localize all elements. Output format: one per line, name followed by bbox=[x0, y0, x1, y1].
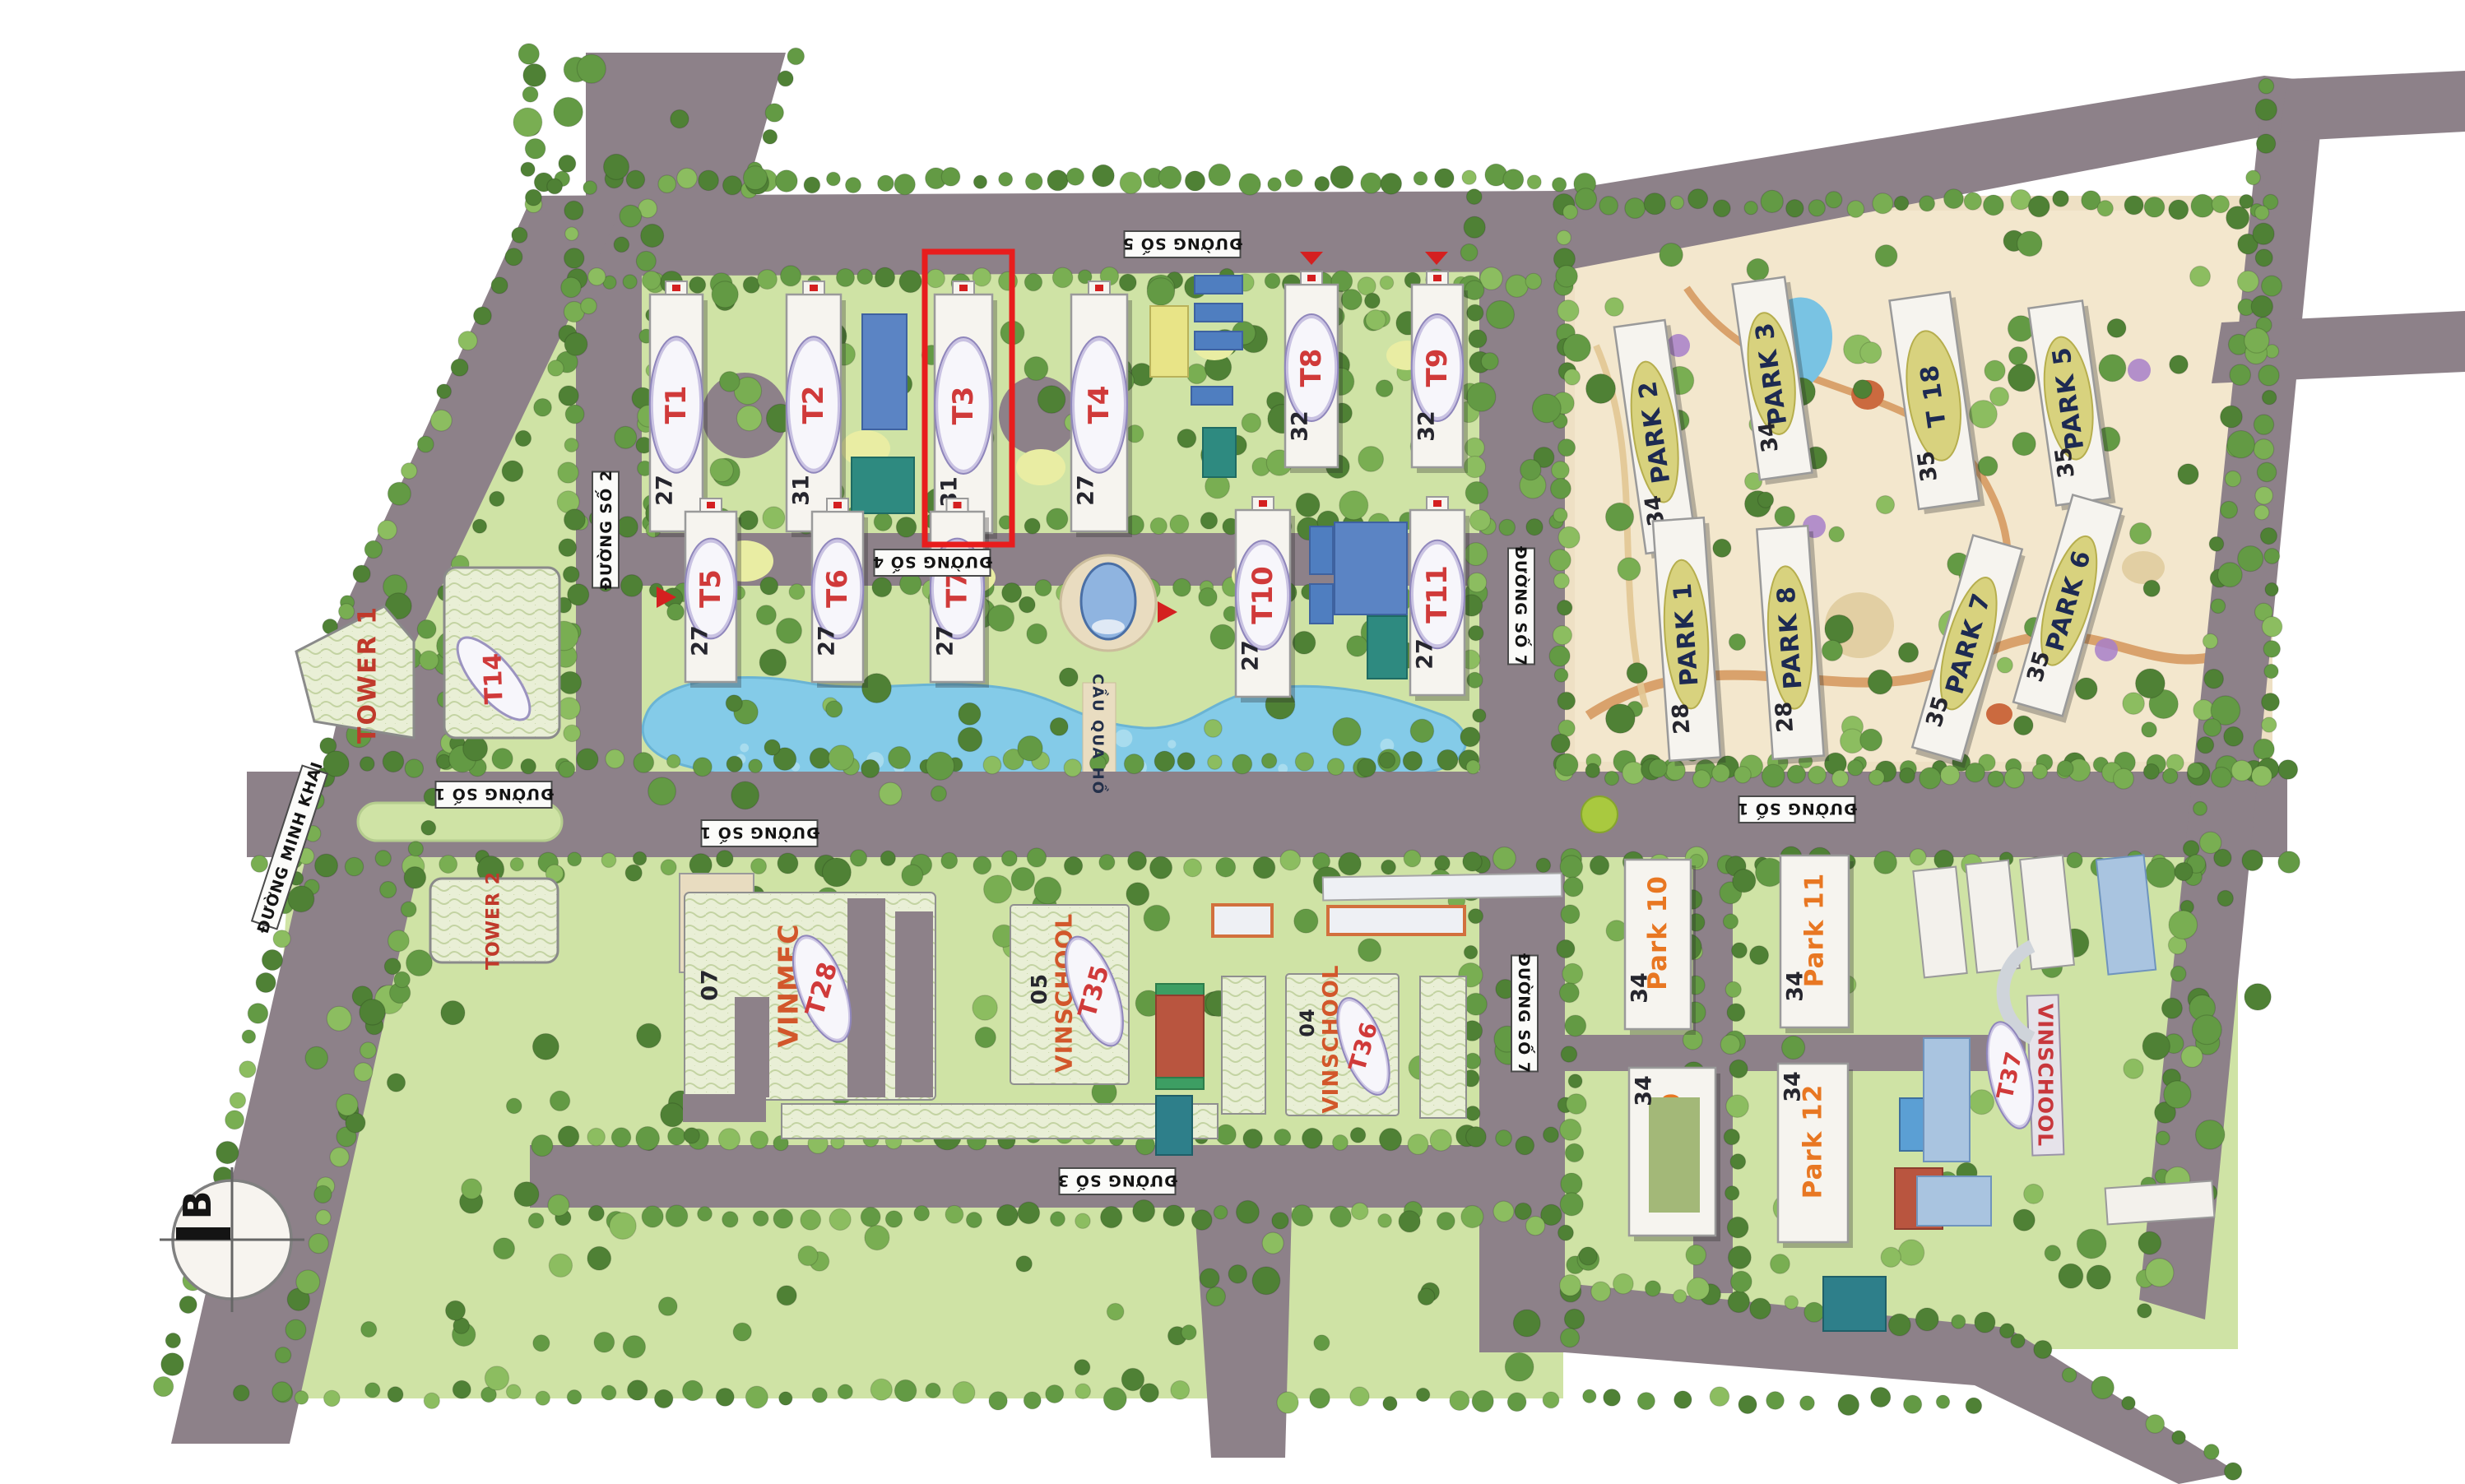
tree-icon bbox=[1692, 770, 1711, 788]
tree-icon bbox=[773, 1209, 792, 1228]
tree-icon bbox=[1687, 1278, 1709, 1300]
building-label-T9: T9 bbox=[1421, 349, 1454, 387]
tree-icon bbox=[875, 267, 895, 287]
tree-icon bbox=[513, 108, 542, 137]
tree-icon bbox=[179, 1296, 197, 1313]
tree-icon bbox=[1888, 1314, 1910, 1336]
tree-icon bbox=[2034, 1340, 2052, 1358]
tree-icon bbox=[1216, 857, 1236, 877]
tree-icon bbox=[510, 858, 523, 871]
tree-icon bbox=[1744, 202, 1757, 215]
tree-icon bbox=[1399, 1211, 1420, 1232]
facility-structure bbox=[1150, 306, 1188, 377]
tree-icon bbox=[2190, 267, 2211, 287]
tree-icon bbox=[1333, 1135, 1349, 1151]
tree-icon bbox=[727, 756, 742, 772]
tree-icon bbox=[2253, 223, 2274, 244]
tree-icon bbox=[1825, 614, 1853, 642]
tree-icon bbox=[973, 995, 997, 1020]
tree-icon bbox=[926, 269, 945, 287]
tree-icon bbox=[2203, 633, 2217, 648]
tree-icon bbox=[1552, 461, 1570, 480]
tree-icon bbox=[1414, 172, 1427, 186]
tree-icon bbox=[339, 604, 355, 619]
tree-icon bbox=[1853, 380, 1872, 399]
tree-icon bbox=[547, 179, 563, 194]
tree-icon bbox=[1915, 1308, 1938, 1331]
tree-icon bbox=[1725, 981, 1741, 997]
tree-icon bbox=[1561, 1173, 1582, 1194]
facility-structure bbox=[1195, 304, 1242, 322]
facility-structure bbox=[2105, 1181, 2215, 1225]
tree-icon bbox=[870, 1379, 892, 1400]
tree-icon bbox=[636, 251, 656, 271]
tree-icon bbox=[383, 751, 403, 772]
tree-icon bbox=[1503, 169, 1524, 190]
building-number-PARK12: 34 bbox=[1780, 1071, 1806, 1102]
tree-icon bbox=[959, 703, 981, 725]
tree-icon bbox=[1565, 1015, 1586, 1036]
street-label-text: ĐƯỜNG SỐ 3 bbox=[1057, 1171, 1177, 1193]
tree-icon bbox=[1558, 439, 1576, 457]
tree-icon bbox=[1351, 1203, 1367, 1219]
tree-icon bbox=[2254, 415, 2273, 434]
tree-icon bbox=[1327, 758, 1344, 775]
tree-icon bbox=[272, 1382, 292, 1402]
tree-icon bbox=[759, 649, 786, 675]
tree-icon bbox=[1365, 293, 1381, 308]
tree-icon bbox=[404, 867, 425, 888]
tree-icon bbox=[1376, 380, 1393, 397]
tree-icon bbox=[2230, 364, 2250, 385]
tree-icon bbox=[1822, 640, 1842, 661]
tree-icon bbox=[2258, 78, 2273, 93]
lake-ripple bbox=[1168, 740, 1176, 748]
tree-icon bbox=[161, 1353, 183, 1375]
facility-structure bbox=[1156, 1096, 1192, 1155]
tree-icon bbox=[689, 276, 706, 293]
tree-icon bbox=[885, 1211, 902, 1227]
tree-icon bbox=[1177, 429, 1196, 448]
tree-icon bbox=[491, 277, 508, 294]
facility-structure bbox=[1335, 522, 1407, 614]
tree-icon bbox=[1150, 517, 1167, 534]
tree-icon bbox=[2254, 739, 2274, 759]
tree-icon bbox=[1556, 266, 1577, 287]
tree-icon bbox=[1378, 1214, 1392, 1228]
tree-icon bbox=[446, 1301, 466, 1320]
tree-icon bbox=[1075, 1384, 1090, 1398]
tree-icon bbox=[1549, 550, 1571, 571]
facility-structure bbox=[1191, 387, 1232, 405]
tree-icon bbox=[2097, 201, 2113, 216]
tree-icon bbox=[751, 859, 767, 874]
tree-icon bbox=[1011, 867, 1034, 890]
tree-icon bbox=[750, 1131, 768, 1149]
tree-icon bbox=[490, 491, 504, 506]
tree-icon bbox=[1469, 330, 1487, 348]
tree-icon bbox=[684, 1128, 699, 1143]
tree-icon bbox=[1713, 539, 1731, 557]
tree-icon bbox=[1210, 624, 1235, 649]
tree-icon bbox=[2231, 760, 2252, 781]
tree-icon bbox=[1280, 850, 1301, 870]
tree-icon bbox=[532, 1033, 559, 1060]
tree-icon bbox=[1507, 1393, 1526, 1412]
tree-icon bbox=[623, 1336, 645, 1358]
building-T9: T932 bbox=[1412, 271, 1468, 473]
tree-icon bbox=[1565, 1143, 1583, 1162]
tree-icon bbox=[2260, 528, 2277, 545]
tree-icon bbox=[515, 430, 531, 446]
tree-icon bbox=[1554, 669, 1567, 682]
road bbox=[1479, 856, 1565, 1352]
tree-icon bbox=[549, 1254, 572, 1277]
tree-icon bbox=[1966, 763, 1985, 781]
tree-icon bbox=[1553, 178, 1567, 192]
tree-icon bbox=[625, 865, 642, 881]
tree-icon bbox=[2193, 802, 2207, 816]
tree-icon bbox=[1285, 169, 1302, 187]
tree-icon bbox=[1093, 165, 1115, 187]
tree-icon bbox=[804, 177, 820, 193]
tree-icon bbox=[1876, 495, 1894, 513]
tree-icon bbox=[1826, 192, 1842, 208]
tree-icon bbox=[1536, 858, 1550, 872]
tree-icon bbox=[1899, 642, 1919, 662]
tree-icon bbox=[1019, 596, 1036, 613]
tree-icon bbox=[1532, 394, 1561, 423]
tree-icon bbox=[559, 386, 578, 406]
tree-icon bbox=[327, 1006, 351, 1031]
facility-structure bbox=[1367, 616, 1407, 679]
tree-icon bbox=[1315, 177, 1330, 192]
tree-icon bbox=[1121, 1368, 1144, 1390]
tree-icon bbox=[430, 410, 452, 431]
tree-icon bbox=[2221, 406, 2243, 428]
roof-marker-icon bbox=[1259, 500, 1267, 507]
tree-icon bbox=[801, 1210, 821, 1231]
tree-icon bbox=[559, 698, 581, 720]
tree-icon bbox=[2196, 1120, 2225, 1149]
tree-icon bbox=[1496, 1130, 1512, 1147]
tree-icon bbox=[2028, 196, 2050, 217]
tree-icon bbox=[2181, 1046, 2203, 1067]
tree-icon bbox=[1847, 201, 1864, 218]
tree-icon bbox=[1473, 709, 1486, 722]
roof-marker-icon bbox=[1433, 275, 1441, 281]
tree-icon bbox=[975, 1027, 996, 1048]
tree-icon bbox=[861, 759, 880, 777]
tree-icon bbox=[1268, 178, 1281, 191]
tree-icon bbox=[1829, 526, 1845, 542]
tree-icon bbox=[2075, 678, 2097, 700]
tree-icon bbox=[787, 48, 804, 64]
tree-icon bbox=[777, 1286, 796, 1305]
tree-icon bbox=[1216, 1125, 1236, 1144]
tree-icon bbox=[2244, 984, 2271, 1010]
tree-icon bbox=[1380, 1129, 1402, 1151]
tree-icon bbox=[2107, 318, 2126, 337]
tree-icon bbox=[1002, 583, 1022, 603]
tree-icon bbox=[2169, 200, 2189, 220]
tree-icon bbox=[588, 268, 606, 285]
tree-icon bbox=[594, 1332, 615, 1352]
tree-icon bbox=[2011, 189, 2031, 209]
tree-icon bbox=[1361, 173, 1381, 193]
tree-icon bbox=[1242, 413, 1260, 432]
tree-icon bbox=[666, 1205, 687, 1227]
tree-icon bbox=[1016, 1256, 1032, 1272]
building-number-T8: 32 bbox=[1288, 410, 1313, 442]
tree-icon bbox=[827, 172, 841, 186]
tree-icon bbox=[353, 565, 370, 582]
tree-icon bbox=[275, 1347, 290, 1363]
tree-icon bbox=[558, 1126, 578, 1147]
building-label-T5: T5 bbox=[694, 569, 727, 608]
tree-icon bbox=[1970, 401, 1998, 429]
tree-icon bbox=[567, 1390, 581, 1404]
tree-icon bbox=[2014, 716, 2033, 735]
tree-icon bbox=[1506, 275, 1528, 297]
tree-icon bbox=[1075, 1360, 1090, 1375]
tree-icon bbox=[1252, 1267, 1280, 1295]
tree-icon bbox=[1560, 856, 1582, 878]
tree-icon bbox=[1467, 304, 1483, 321]
tree-icon bbox=[698, 1207, 713, 1222]
tree-icon bbox=[1637, 1393, 1655, 1410]
tree-icon bbox=[288, 886, 314, 912]
tree-icon bbox=[1185, 171, 1205, 191]
tree-icon bbox=[880, 851, 895, 865]
tree-icon bbox=[1154, 751, 1175, 772]
tree-icon bbox=[1591, 1282, 1611, 1301]
tree-icon bbox=[1358, 758, 1376, 777]
tree-icon bbox=[2146, 1259, 2174, 1287]
tree-icon bbox=[2142, 1032, 2170, 1060]
tree-icon bbox=[295, 1391, 308, 1404]
tree-icon bbox=[521, 162, 535, 176]
tree-icon bbox=[242, 1030, 255, 1043]
building-number-T4: 27 bbox=[1074, 475, 1099, 506]
tree-icon bbox=[1380, 276, 1393, 290]
tree-icon bbox=[1766, 1392, 1785, 1410]
tree-icon bbox=[671, 110, 689, 128]
tree-icon bbox=[2191, 194, 2214, 217]
tree-icon bbox=[417, 620, 436, 639]
tree-icon bbox=[1239, 174, 1260, 195]
tree-icon bbox=[2067, 852, 2082, 868]
tree-icon bbox=[384, 958, 401, 975]
tree-icon bbox=[1644, 193, 1665, 215]
tree-icon bbox=[1027, 848, 1046, 867]
tree-icon bbox=[723, 176, 742, 195]
tree-icon bbox=[779, 1392, 792, 1405]
facility-structure bbox=[683, 1094, 766, 1122]
tree-icon bbox=[1725, 1186, 1739, 1200]
tree-icon bbox=[2062, 1368, 2076, 1382]
tree-icon bbox=[718, 1129, 740, 1150]
tree-icon bbox=[2161, 998, 2182, 1018]
tree-icon bbox=[2237, 271, 2258, 292]
tree-icon bbox=[677, 168, 698, 188]
tree-icon bbox=[1564, 369, 1580, 385]
tree-icon bbox=[1410, 719, 1433, 742]
tree-icon bbox=[1557, 300, 1579, 322]
roof-marker-icon bbox=[833, 502, 842, 508]
tree-icon bbox=[2099, 355, 2126, 382]
tree-icon bbox=[1107, 1303, 1123, 1319]
road bbox=[2279, 71, 2465, 141]
tree-icon bbox=[273, 930, 290, 948]
tree-icon bbox=[1564, 1309, 1584, 1329]
building-T1: T127 bbox=[650, 281, 708, 537]
tree-icon bbox=[463, 736, 488, 761]
tree-icon bbox=[736, 406, 762, 431]
tree-icon bbox=[973, 175, 986, 188]
tree-icon bbox=[637, 1023, 662, 1048]
building-T7: T727 bbox=[931, 499, 989, 688]
tree-icon bbox=[2170, 355, 2188, 373]
tree-icon bbox=[2240, 194, 2254, 208]
tree-icon bbox=[365, 1383, 380, 1398]
building-number-PARK3: 34 bbox=[1754, 420, 1784, 455]
tree-icon bbox=[1191, 1210, 1212, 1231]
tree-icon bbox=[1941, 766, 1960, 785]
tree-icon bbox=[472, 519, 486, 533]
tree-icon bbox=[2175, 863, 2193, 881]
tree-icon bbox=[1710, 1387, 1729, 1407]
tree-icon bbox=[2262, 717, 2277, 732]
tree-icon bbox=[1466, 1127, 1486, 1147]
tree-icon bbox=[1314, 1335, 1330, 1351]
tree-icon bbox=[781, 266, 801, 286]
tree-icon bbox=[822, 858, 851, 887]
building-PARK12: Park 1234 bbox=[1778, 1064, 1853, 1248]
tree-icon bbox=[1350, 1387, 1369, 1406]
tree-icon bbox=[2209, 536, 2224, 551]
tree-icon bbox=[1723, 914, 1738, 929]
tree-icon bbox=[521, 758, 536, 773]
tree-icon bbox=[337, 1094, 358, 1115]
tree-icon bbox=[1731, 1271, 1752, 1292]
tree-icon bbox=[587, 1128, 605, 1145]
tree-icon bbox=[565, 405, 584, 424]
tree-icon bbox=[1124, 754, 1144, 774]
tree-icon bbox=[1513, 1310, 1540, 1337]
tree-icon bbox=[494, 1238, 515, 1259]
tree-icon bbox=[1560, 1119, 1581, 1140]
tree-icon bbox=[2172, 1431, 2185, 1444]
tree-icon bbox=[1585, 763, 1599, 777]
tree-icon bbox=[1024, 518, 1040, 534]
tree-icon bbox=[1417, 1388, 1430, 1401]
tree-icon bbox=[408, 842, 423, 856]
street-label-text: ĐƯỜNG SỐ 5 bbox=[1122, 234, 1242, 256]
tree-icon bbox=[1786, 200, 1803, 217]
park-flowerbed bbox=[2128, 359, 2151, 382]
tree-icon bbox=[941, 852, 958, 869]
street-label-text: ĐƯỜNG SỐ 4 bbox=[872, 553, 992, 574]
tree-icon bbox=[2008, 364, 2035, 392]
site-plan-svg: T127T231T331T427T832T932T527T627T727T102… bbox=[0, 0, 2465, 1484]
building-label-T10: T10 bbox=[1246, 566, 1279, 624]
building-label-T1: T1 bbox=[660, 386, 693, 424]
tree-icon bbox=[1583, 1389, 1596, 1403]
tree-icon bbox=[324, 1390, 341, 1407]
tree-icon bbox=[2188, 763, 2203, 778]
tree-icon bbox=[1804, 1302, 1824, 1322]
tree-icon bbox=[628, 1380, 648, 1400]
facility-label-vinschool-t37: VINSCHOOL bbox=[2034, 1004, 2058, 1147]
tree-icon bbox=[1873, 193, 1893, 214]
tree-icon bbox=[1590, 856, 1609, 874]
tree-icon bbox=[1493, 1201, 1514, 1222]
tree-icon bbox=[2024, 1184, 2044, 1203]
tree-icon bbox=[2013, 1209, 2035, 1231]
tree-icon bbox=[850, 850, 866, 866]
street-label-text: ĐƯỜNG SỐ 1 bbox=[434, 785, 554, 806]
tree-icon bbox=[1060, 668, 1079, 687]
tree-icon bbox=[1525, 273, 1541, 289]
street-label-6: ĐƯỜNG SỐ 1 bbox=[699, 820, 819, 846]
street-label-text: ĐƯỜNG SỐ 1 bbox=[699, 823, 819, 845]
tree-icon bbox=[2197, 737, 2213, 754]
tree-icon bbox=[453, 1380, 471, 1398]
tree-icon bbox=[1787, 765, 1805, 783]
tree-icon bbox=[1472, 1390, 1493, 1412]
tree-icon bbox=[406, 950, 433, 976]
tree-icon bbox=[733, 1323, 751, 1341]
tree-icon bbox=[1051, 1212, 1065, 1227]
park-flowerbed bbox=[2095, 638, 2118, 661]
tree-icon bbox=[2212, 196, 2229, 213]
tree-icon bbox=[1481, 353, 1498, 370]
tree-icon bbox=[1775, 506, 1794, 526]
tree-icon bbox=[354, 1063, 372, 1081]
facility-structure bbox=[852, 457, 914, 513]
lake-ripple bbox=[740, 744, 749, 753]
bridge-label: CẦU QUA HỒ bbox=[1089, 674, 1109, 795]
street-label-1: ĐƯỜNG SỐ 4 bbox=[872, 550, 992, 576]
tree-icon bbox=[1465, 481, 1488, 503]
tree-icon bbox=[458, 332, 477, 350]
tree-icon bbox=[2254, 505, 2269, 520]
courtyard bbox=[1649, 1097, 1700, 1213]
tree-icon bbox=[528, 1213, 544, 1229]
tree-icon bbox=[880, 782, 903, 805]
tree-icon bbox=[1604, 1389, 1621, 1407]
tree-icon bbox=[2226, 206, 2249, 230]
tree-icon bbox=[1184, 859, 1202, 877]
tree-icon bbox=[2204, 1445, 2219, 1459]
tree-icon bbox=[1875, 245, 1897, 267]
tree-icon bbox=[559, 671, 581, 693]
tree-icon bbox=[1713, 200, 1730, 217]
tree-icon bbox=[661, 1103, 685, 1127]
tree-icon bbox=[1430, 1129, 1451, 1151]
tree-icon bbox=[693, 758, 712, 777]
tree-icon bbox=[1674, 1391, 1692, 1408]
tree-icon bbox=[2211, 599, 2225, 613]
tree-icon bbox=[1464, 945, 1477, 958]
tree-icon bbox=[1729, 1246, 1752, 1269]
tree-icon bbox=[1350, 1128, 1365, 1143]
tree-icon bbox=[1243, 1129, 1262, 1148]
tree-icon bbox=[1586, 374, 1616, 404]
tree-icon bbox=[1035, 580, 1051, 596]
tree-icon bbox=[2138, 1231, 2161, 1254]
